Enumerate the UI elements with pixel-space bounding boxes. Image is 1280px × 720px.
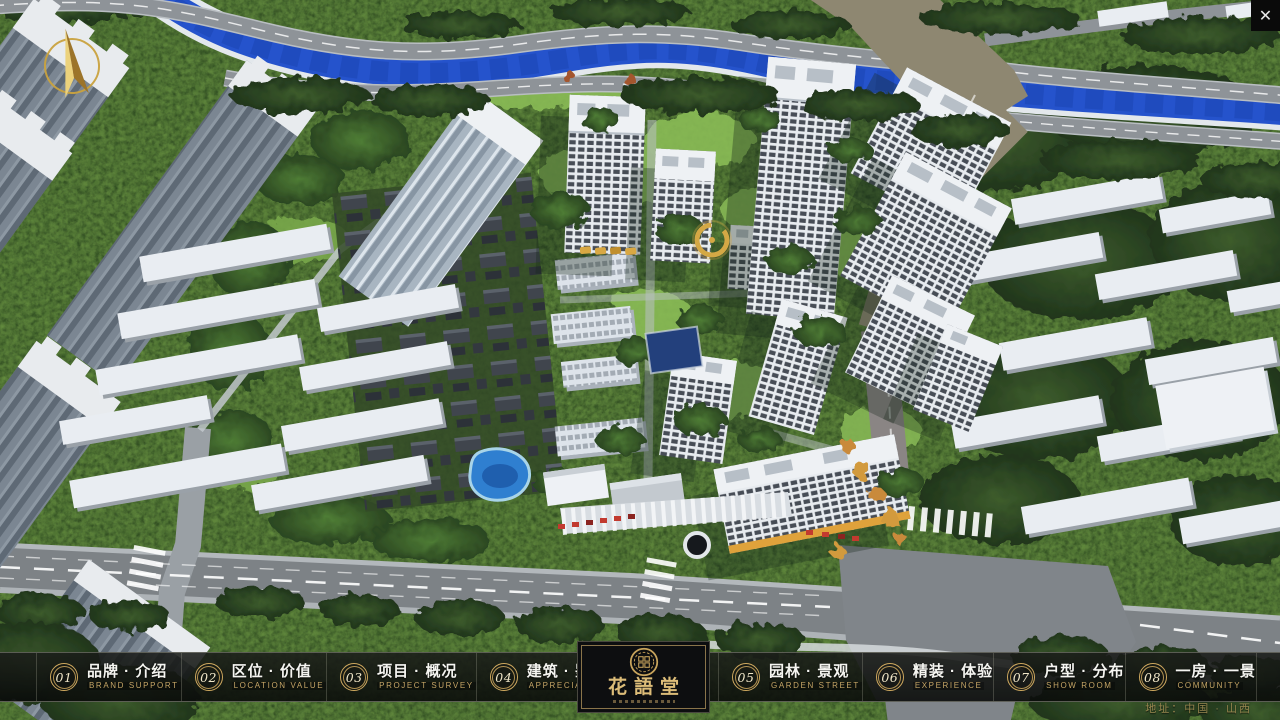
nav-label-en: LOCATION VALUE — [232, 682, 327, 690]
nav-label-en: SHOW ROOM — [1044, 682, 1114, 690]
nav-label-zh: 园林 · 景观 — [769, 664, 862, 680]
logo-subtitle-rule — [613, 700, 675, 703]
nav-label-en: COMMUNITY — [1176, 682, 1244, 690]
nav-label-zh: 品牌 · 介绍 — [87, 664, 181, 680]
numbered-medallion-icon: 07 — [1007, 663, 1035, 691]
nav-group-right: 05 园林 · 景观 GARDEN STREET 06 精装 · 体验 EXPE… — [718, 653, 1234, 701]
masterplan-presentation: ✕ 01 品牌 · 介绍 BRAND SUPPORT 02 区位 · 价值 LO… — [0, 0, 1280, 720]
numbered-medallion-icon: 05 — [732, 663, 760, 691]
nav-label-zh: 户型 · 分布 — [1044, 664, 1124, 680]
numbered-medallion-icon: 06 — [876, 663, 904, 691]
nav-label-en: BRAND SUPPORT — [87, 682, 181, 690]
close-x-icon: ✕ — [1259, 6, 1272, 25]
nav-label-zh: 精装 · 体验 — [913, 664, 993, 680]
nav-label-zh: 项目 · 概况 — [377, 664, 476, 680]
logo-name: 花語堂 — [601, 678, 686, 697]
address-text: 地址：中国 · 山西 — [1145, 700, 1252, 716]
nav-label-zh: 区位 · 价值 — [232, 664, 327, 680]
brand-seal-icon — [629, 647, 659, 677]
numbered-medallion-icon: 04 — [490, 663, 518, 691]
nav-item-floorplan-distribution[interactable]: 07 户型 · 分布 SHOW ROOM — [993, 653, 1124, 701]
numbered-medallion-icon: 08 — [1139, 663, 1167, 691]
nav-item-garden-landscape[interactable]: 05 园林 · 景观 GARDEN STREET — [718, 653, 862, 701]
nav-item-project-survey[interactable]: 03 项目 · 概况 PROJECT SURVEY — [326, 653, 476, 701]
aerial-masterplan-render — [0, 0, 1280, 720]
nav-item-brand-intro[interactable]: 01 品牌 · 介绍 BRAND SUPPORT — [36, 653, 181, 701]
nav-label-zh: 一房 · 一景 — [1176, 664, 1256, 680]
nav-label-en: GARDEN STREET — [769, 682, 862, 690]
nav-label-en: PROJECT SURVEY — [377, 682, 476, 690]
close-button[interactable]: ✕ — [1251, 0, 1280, 31]
numbered-medallion-icon: 03 — [340, 663, 368, 691]
project-logo[interactable]: 花語堂 — [577, 641, 710, 713]
nav-item-room-view[interactable]: 08 一房 · 一景 COMMUNITY — [1125, 653, 1257, 701]
numbered-medallion-icon: 01 — [50, 663, 78, 691]
nav-item-location-value[interactable]: 02 区位 · 价值 LOCATION VALUE — [181, 653, 327, 701]
nav-group-left: 01 品牌 · 介绍 BRAND SUPPORT 02 区位 · 价值 LOCA… — [36, 653, 576, 701]
numbered-medallion-icon: 02 — [195, 663, 223, 691]
nav-item-decor-experience[interactable]: 06 精装 · 体验 EXPERIENCE — [862, 653, 993, 701]
nav-label-en: EXPERIENCE — [913, 682, 985, 690]
